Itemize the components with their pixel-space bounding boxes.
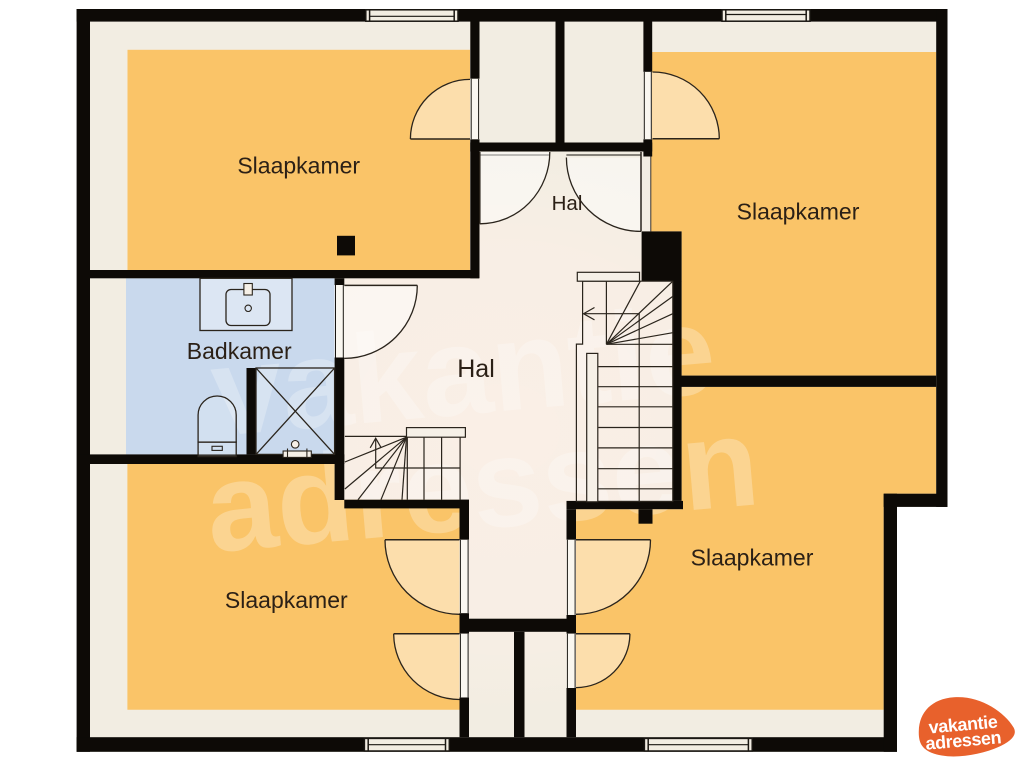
- svg-text:Badkamer: Badkamer: [187, 338, 292, 364]
- svg-text:Slaapkamer: Slaapkamer: [237, 152, 360, 178]
- svg-text:Slaapkamer: Slaapkamer: [737, 199, 860, 225]
- svg-text:Hal: Hal: [457, 355, 495, 383]
- svg-text:Hal: Hal: [552, 192, 583, 215]
- svg-text:Slaapkamer: Slaapkamer: [225, 587, 348, 613]
- svg-text:Slaapkamer: Slaapkamer: [691, 545, 814, 571]
